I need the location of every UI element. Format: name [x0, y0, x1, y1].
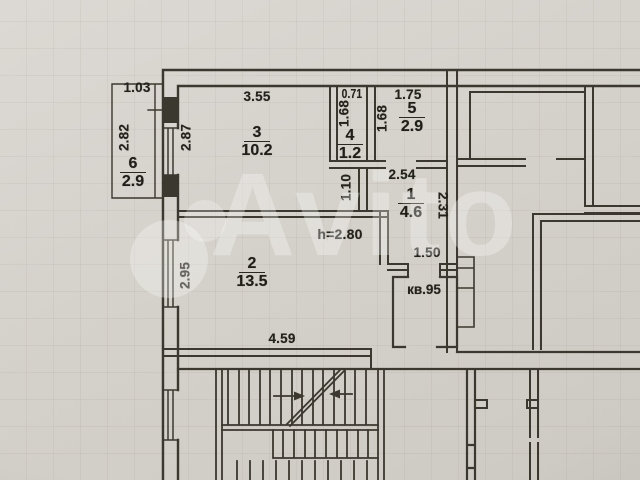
room-3-area: 10.2 — [233, 142, 281, 159]
room-3-label: 3 10.2 — [233, 124, 281, 159]
neighbor-walls — [457, 86, 640, 349]
room-6-number: 6 — [120, 156, 147, 173]
room-4-number: 4 — [337, 128, 364, 145]
dim-hall-left: 1.10 — [339, 168, 354, 208]
room-5-area: 2.9 — [388, 118, 436, 135]
corridor-walls — [178, 352, 640, 480]
dim-hall-bottom: 1.50 — [405, 245, 449, 260]
apartment-number-label: кв.95 — [395, 282, 453, 297]
dim-living-depth: 2.95 — [178, 256, 193, 296]
window-symbols — [163, 128, 178, 440]
wall-piers — [164, 97, 178, 197]
floor-plan-photo: 1.03 2.82 3.55 2.87 0.71 1.68 1.75 1.68 … — [0, 0, 640, 480]
dim-living-width: 4.59 — [260, 331, 304, 346]
dim-room3-depth: 2.87 — [179, 118, 194, 158]
staircase — [216, 369, 384, 480]
shaft-cells — [457, 257, 474, 327]
lower-right-rooms — [475, 369, 538, 480]
room-6-area: 2.9 — [109, 173, 157, 190]
dim-room3-width: 3.55 — [235, 89, 279, 104]
ceiling-height-label: h=2.80 — [305, 226, 375, 242]
room-6-label: 6 2.9 — [109, 155, 157, 190]
dim-hall-width: 2.54 — [380, 167, 424, 182]
dim-balcony-depth: 2.82 — [117, 118, 132, 158]
room-2-label: 2 13.5 — [228, 255, 276, 290]
room-1-number: 1 — [398, 187, 425, 204]
room-5-label: 5 2.9 — [388, 100, 436, 135]
room-4-label: 4 1.2 — [328, 127, 372, 162]
room-2-number: 2 — [239, 256, 266, 273]
dim-hall-depth: 2.31 — [436, 186, 451, 226]
room-5-number: 5 — [399, 101, 426, 118]
room-1-area: 4.6 — [387, 204, 435, 221]
dim-balcony-width: 1.03 — [115, 80, 159, 95]
room-3-number: 3 — [244, 125, 271, 142]
room-2-area: 13.5 — [228, 273, 276, 290]
room-4-area: 1.2 — [328, 145, 372, 162]
room-1-label: 1 4.6 — [387, 186, 435, 221]
